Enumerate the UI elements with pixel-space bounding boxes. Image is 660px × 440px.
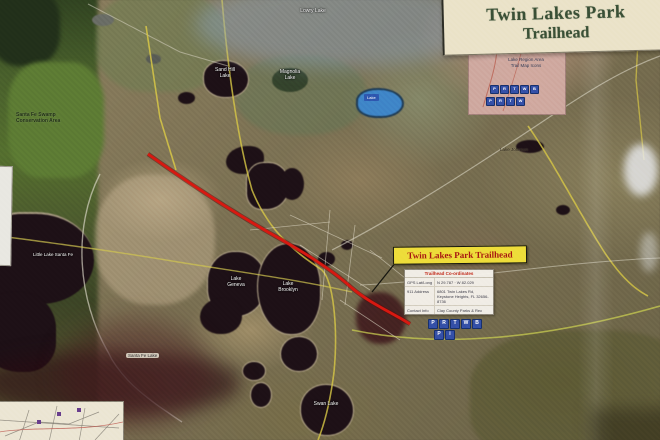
street-map-inset (0, 401, 124, 440)
lake-johnson-label: Lake Johnson (500, 147, 528, 152)
parking-icon: P (490, 85, 499, 94)
trailhead-callout-label: Twin Lakes Park Trailhead (393, 245, 527, 264)
legend-icon-row-1: P R T W B (490, 85, 539, 94)
parking-icon: P (434, 330, 444, 340)
trailhead-callout-text: Twin Lakes Park Trailhead (407, 249, 512, 260)
road-ring-west (82, 174, 182, 422)
parking-icon: P (428, 319, 438, 329)
little-lake-santa-fe-label: Little Lake Santa Fe (18, 252, 88, 257)
water-icon: W (461, 319, 471, 329)
yellow-road-northeast (528, 126, 648, 296)
parking-icon: P (486, 97, 495, 106)
legend-text-line-2: Trail Map Icons (491, 63, 561, 69)
biking-icon: B (472, 319, 482, 329)
info-row-contact-label: Contact Info (405, 306, 435, 314)
lake-geneva-label-line-2: Geneva (216, 283, 256, 289)
lowry-lake-label: Lowry Lake (290, 9, 336, 15)
swamp-area-label: Santa Fe Swamp Conservation Area (16, 112, 86, 124)
santa-fe-lake-label: Santa Fe Lake (126, 353, 159, 358)
water-icon: W (520, 85, 529, 94)
info-row-contact: Contact Info Clay County Parks & Rec (405, 306, 493, 314)
blue-lake-tag: Lake (364, 94, 379, 101)
highway-21-yellow (222, 0, 336, 440)
info-row-gps-label: GPS Lat/Long (405, 278, 435, 286)
info-icon: i (445, 330, 455, 340)
water-icon: W (516, 97, 525, 106)
restroom-icon: R (439, 319, 449, 329)
lake-geneva-label: Lake Geneva (216, 277, 256, 289)
swamp-label-line-2: Conservation Area (16, 118, 86, 124)
title-line-2: Trailhead (523, 24, 590, 44)
info-row-contact-value: Clay County Parks & Rec (435, 306, 493, 314)
amenity-icon-row-1: P R T W B (428, 319, 482, 329)
highway-100-east-yellow (352, 306, 660, 339)
picnic-icon: T (450, 319, 460, 329)
taped-paper-left-edge (0, 166, 13, 266)
magnolia-label-line-2: Lake (272, 76, 308, 82)
picnic-icon: T (506, 97, 515, 106)
sand-hill-label-line-2: Lake (205, 74, 245, 80)
picnic-icon: T (510, 85, 519, 94)
amenity-icon-row-2: P i (434, 330, 455, 340)
info-row-address-value: 6801 Twin Lakes Rd, Keystone Heights, FL… (435, 287, 493, 305)
legend-text: Lake Region Area Trail Map Icons (491, 57, 561, 69)
info-panel-header: Trailhead Co-ordinates (405, 270, 493, 278)
swan-lake-label: Swan Lake (302, 402, 350, 408)
info-row-address-label: 911 Address (405, 287, 435, 305)
info-row-gps-value: N 29.787 · W 82.029 (435, 278, 493, 286)
restroom-icon: R (496, 97, 505, 106)
restroom-icon: R (500, 85, 509, 94)
sand-hill-lake-label: Sand Hill Lake (205, 68, 245, 80)
title-line-1: Twin Lakes Park (486, 1, 626, 25)
title-banner: Twin Lakes Park Trailhead (441, 0, 660, 56)
street-inset-lines (0, 402, 123, 440)
lake-brooklyn-label: Lake Brooklyn (266, 282, 310, 294)
info-row-address: 911 Address 6801 Twin Lakes Rd, Keystone… (405, 287, 493, 306)
info-row-gps: GPS Lat/Long N 29.787 · W 82.029 (405, 278, 493, 287)
magnolia-lake-label: Magnolia Lake (272, 70, 308, 82)
callout-leader-line (372, 262, 396, 292)
trailhead-map-photo: Twin Lakes Park Trailhead Lake Region Ar… (0, 0, 660, 440)
legend-icon-row-2: P R T W (486, 97, 525, 106)
biking-icon: B (530, 85, 539, 94)
lake-brooklyn-label-line-2: Brooklyn (266, 288, 310, 294)
trailhead-info-panel: Trailhead Co-ordinates GPS Lat/Long N 29… (404, 269, 494, 315)
road-topleft-diagonal (88, 4, 228, 66)
